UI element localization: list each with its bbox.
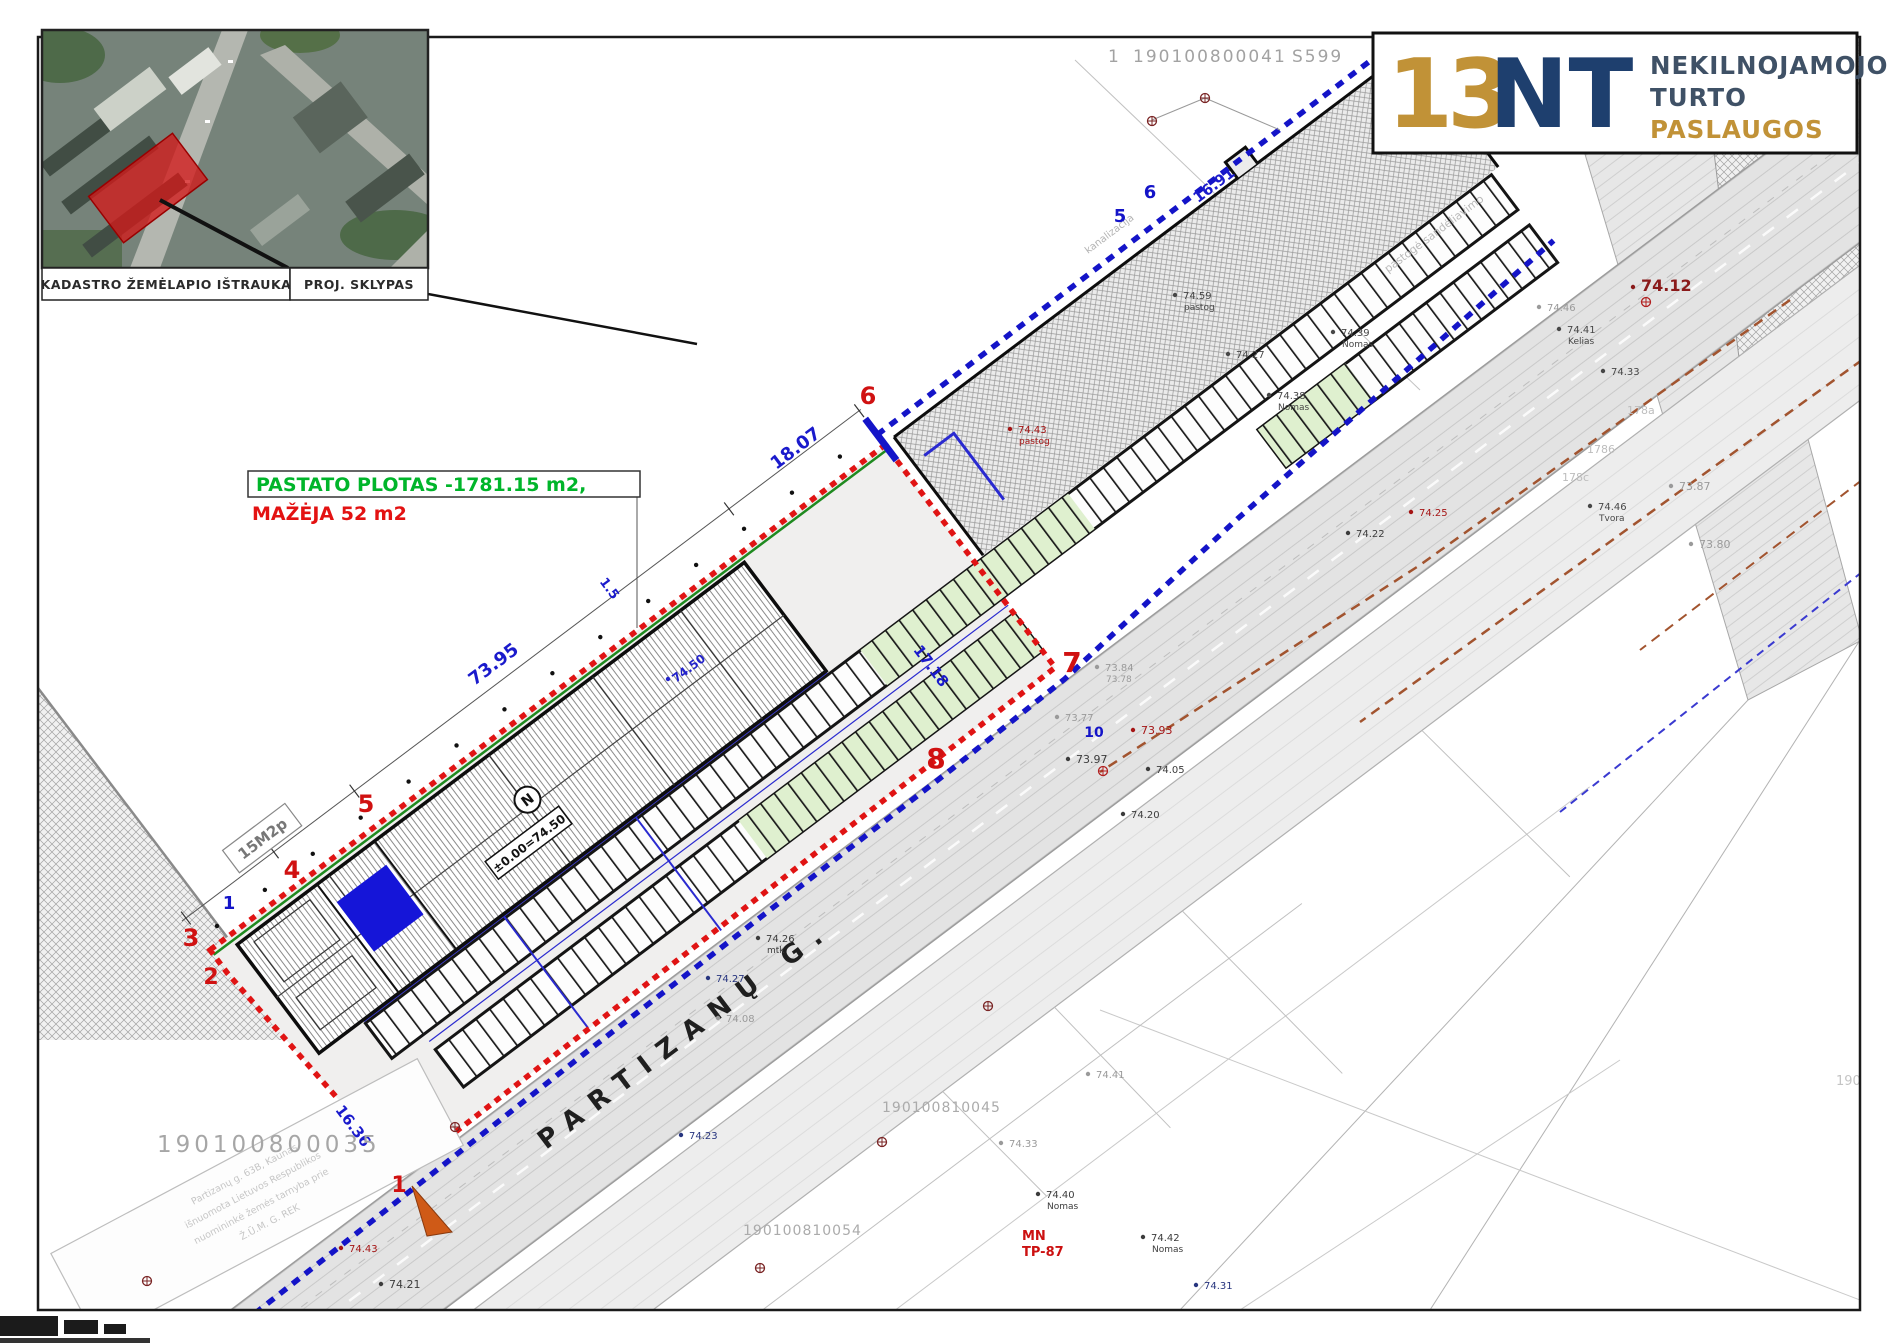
spot-elevation-label: 74.59 xyxy=(1183,291,1212,302)
faint-map-label: 1786 xyxy=(1587,443,1615,456)
spot-sub-label: Tvora xyxy=(1598,514,1625,524)
spot-dot xyxy=(339,1246,343,1250)
spot-elevation-label: 74.41 xyxy=(1096,1070,1125,1081)
spot-sub-label: 73.78 xyxy=(1106,675,1132,685)
company-logo: 13 NT NEKILNOJAMOJO TURTO PASLAUGOS xyxy=(1373,33,1889,153)
spot-dot xyxy=(1267,393,1271,397)
spot-elevation-label: 74.43 xyxy=(349,1244,378,1255)
spot-elevation-label: 74.40 xyxy=(1046,1190,1075,1201)
spot-dot xyxy=(1331,330,1335,334)
spot-elevation-label: 74.27 xyxy=(1236,350,1265,361)
spot-dot xyxy=(1086,1072,1090,1076)
parcel-number-mid2: 190100810054 xyxy=(743,1223,862,1239)
faint-map-label: 178c xyxy=(1562,471,1589,484)
spot-elevation-label: 74.46 xyxy=(1598,502,1627,513)
red-vertex-number: 7 xyxy=(1062,646,1081,679)
spot-elevation-label: 74.26 xyxy=(766,934,795,945)
parcel-number-left: 190100800035 xyxy=(157,1132,381,1158)
spot-elevation-label: 73.97 xyxy=(1076,753,1108,766)
spot-dot xyxy=(1066,757,1070,761)
spot-sub-label: Nomas xyxy=(1278,403,1310,413)
spot-sub-label: Nomas xyxy=(1342,340,1374,350)
spot-sub-label: pastog xyxy=(1184,303,1215,313)
spot-sub-label: Kelias xyxy=(1568,337,1595,347)
spot-dot xyxy=(1141,1235,1145,1239)
spot-elevation-label: 74.23 xyxy=(689,1131,718,1142)
spot-dot xyxy=(679,1133,683,1137)
spot-dot xyxy=(716,1016,720,1020)
logo-line-3: PASLAUGOS xyxy=(1650,115,1824,144)
building-area-text: PASTATO PLOTAS -1781.15 m2, xyxy=(256,474,586,496)
spot-sub-label: pastog xyxy=(1019,437,1050,447)
spot-dot xyxy=(1146,767,1150,771)
parcel-top-suffix: S599 xyxy=(1292,47,1343,67)
spot-elevation-label: 74.25 xyxy=(1419,508,1448,519)
spot-dot xyxy=(1346,531,1350,535)
spot-elevation-label: 74.05 xyxy=(1156,765,1185,776)
spot-elevation-label: 74.41 xyxy=(1567,325,1596,336)
spot-dot xyxy=(1036,1192,1040,1196)
logo-mark-nt: NT xyxy=(1489,40,1634,150)
satellite-inset: KADASTRO ŽEMĖLAPIO IŠTRAUKA PROJ. SKLYPA… xyxy=(15,17,450,300)
spot-elevation-label: 73.77 xyxy=(1065,713,1094,724)
area-decrease-text: MAŽĖJA 52 m2 xyxy=(252,501,407,525)
red-vertex-number: 8 xyxy=(926,742,945,775)
red-vertex-number: 4 xyxy=(284,856,301,884)
spot-elevation-label: 74.27 xyxy=(716,974,745,985)
spot-dot xyxy=(1008,427,1012,431)
blue-vertex-number: 10 xyxy=(1084,725,1104,741)
red-vertex-number: 1 xyxy=(391,1173,406,1198)
spot-dot xyxy=(756,936,760,940)
logo-line-2: TURTO xyxy=(1650,83,1747,112)
spot-dot xyxy=(706,976,710,980)
mn-label-1: MN xyxy=(1022,1229,1046,1244)
logo-line-1: NEKILNOJAMOJO xyxy=(1650,51,1889,80)
parcel-number-mid: 190100810045 xyxy=(882,1100,1001,1116)
spot-dot xyxy=(1537,305,1541,309)
spot-elevation-label: 73.87 xyxy=(1679,480,1711,493)
red-vertex-number: 5 xyxy=(358,790,375,818)
spot-dot xyxy=(1689,542,1693,546)
spot-dot xyxy=(1601,369,1605,373)
spot-sub-label: Nomas xyxy=(1047,1202,1079,1212)
spot-dot xyxy=(1557,327,1561,331)
spot-elevation-label: 74.20 xyxy=(1131,810,1160,821)
spot-dot xyxy=(1121,812,1125,816)
spot-elevation-label: 74.33 xyxy=(1611,367,1640,378)
spot-dot xyxy=(1409,510,1413,514)
blue-vertex-number: 6 xyxy=(1144,182,1157,203)
spot-dot xyxy=(1669,484,1673,488)
spot-elevation-label: 74.21 xyxy=(389,1278,421,1291)
faint-map-label: 178a xyxy=(1627,404,1655,417)
spot-dot xyxy=(666,677,670,681)
spot-elevation-label: 74.08 xyxy=(726,1014,755,1025)
spot-elevation-label: 74.31 xyxy=(1204,1281,1233,1292)
blue-vertex-number: 1 xyxy=(223,893,236,914)
spot-elevation-label: 74.12 xyxy=(1641,276,1692,295)
spot-elevation-label: 74.38 xyxy=(1277,391,1306,402)
red-vertex-number: 3 xyxy=(183,924,200,952)
spot-sub-label: mtk xyxy=(767,946,785,956)
spot-dot xyxy=(1131,728,1135,732)
inset-label-left: KADASTRO ŽEMĖLAPIO IŠTRAUKA xyxy=(41,277,292,292)
cadastral-site-plan: PARTIZANŲ G. xyxy=(0,0,1900,1344)
spot-elevation-label: 73.80 xyxy=(1699,538,1731,551)
spot-dot xyxy=(1055,715,1059,719)
red-vertex-number: 2 xyxy=(203,965,218,990)
inset-label-right: PROJ. SKLYPAS xyxy=(304,277,414,292)
spot-elevation-label: 74.46 xyxy=(1547,303,1576,314)
spot-dot xyxy=(1588,504,1592,508)
spot-elevation-label: 74.33 xyxy=(1009,1139,1038,1150)
spot-elevation-label: 73.93 xyxy=(1141,724,1173,737)
spot-dot xyxy=(1226,352,1230,356)
spot-dot xyxy=(1173,293,1177,297)
spot-dot xyxy=(379,1282,383,1286)
spot-dot xyxy=(1095,665,1099,669)
spot-elevation-label: 74.43 xyxy=(1018,425,1047,436)
spot-elevation-label: 73.84 xyxy=(1105,663,1134,674)
mn-label-2: TP-87 xyxy=(1022,1245,1064,1260)
parcel-top-prefix: 1 xyxy=(1108,47,1121,67)
spot-sub-label: Nomas xyxy=(1152,1245,1184,1255)
spot-dot xyxy=(1194,1283,1198,1287)
spot-elevation-label: 74.22 xyxy=(1356,529,1385,540)
spot-dot xyxy=(1631,285,1635,289)
spot-elevation-label: 74.42 xyxy=(1151,1233,1180,1244)
spot-elevation-label: 74.39 xyxy=(1341,328,1370,339)
parcel-number-top: 190100800041 xyxy=(1133,47,1287,67)
blue-vertex-number: 5 xyxy=(1114,206,1127,227)
spot-dot xyxy=(999,1141,1003,1145)
red-vertex-number: 6 xyxy=(860,382,877,410)
